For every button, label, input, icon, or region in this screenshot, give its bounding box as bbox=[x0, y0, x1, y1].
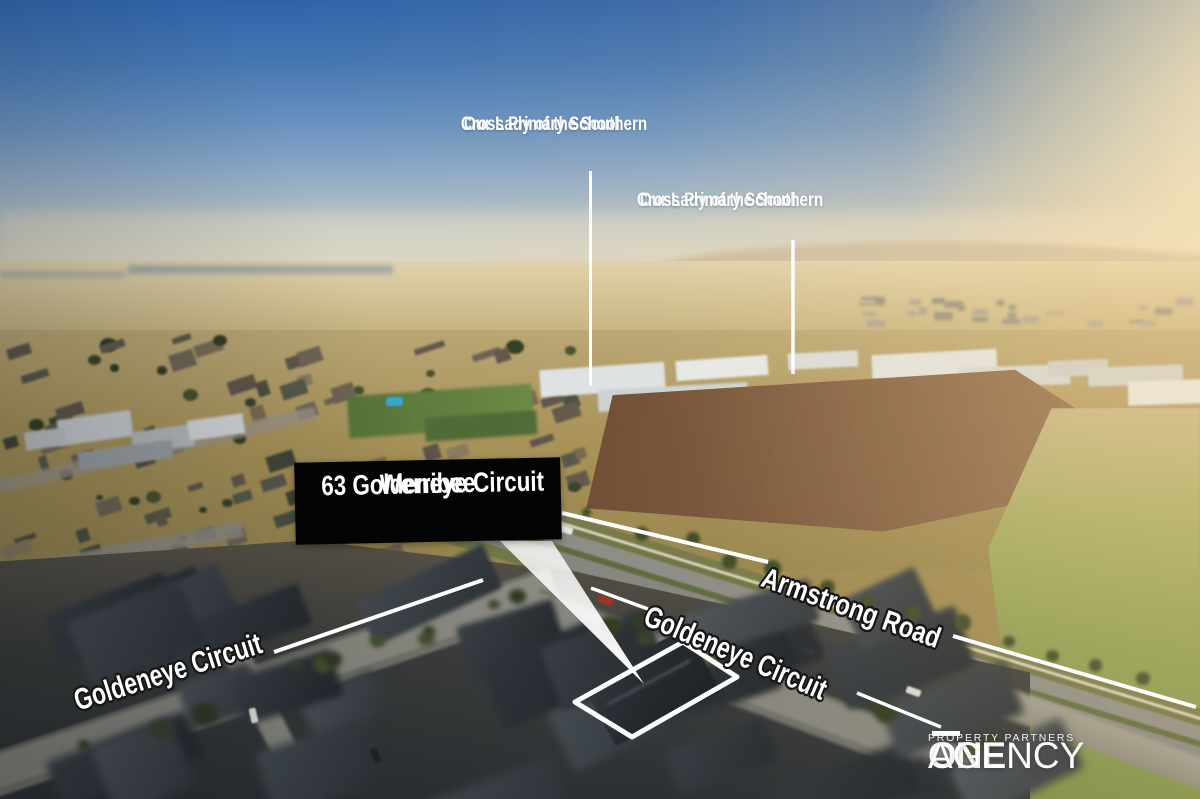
distant-house bbox=[1155, 308, 1172, 316]
school-roof bbox=[1128, 378, 1200, 405]
distant-house bbox=[910, 299, 921, 305]
distant-house bbox=[1046, 312, 1065, 315]
tree-shape bbox=[146, 491, 161, 503]
tree-shape bbox=[875, 703, 898, 723]
school-label-line: Cross Primary School bbox=[461, 112, 620, 138]
distant-house bbox=[973, 309, 988, 316]
tree-shape bbox=[183, 389, 198, 401]
distant-house bbox=[907, 311, 916, 316]
distant-house bbox=[1023, 316, 1039, 322]
tree-shape bbox=[290, 660, 303, 671]
distant-house bbox=[972, 317, 987, 322]
tree-shape bbox=[722, 554, 737, 569]
tree-shape bbox=[110, 364, 120, 372]
tree-shape bbox=[192, 703, 218, 725]
tree-shape bbox=[370, 635, 384, 647]
tree-shape bbox=[426, 370, 435, 377]
distant-house bbox=[934, 312, 953, 320]
distant-house bbox=[1176, 298, 1193, 306]
tree-shape bbox=[325, 652, 342, 666]
distant-city bbox=[128, 265, 393, 274]
tree-shape bbox=[1003, 636, 1014, 647]
tree-shape bbox=[1136, 672, 1149, 685]
tree-shape bbox=[582, 508, 591, 517]
tree-shape bbox=[635, 527, 649, 541]
distant-house bbox=[1009, 305, 1016, 310]
tree-shape bbox=[955, 614, 972, 631]
distant-house bbox=[1002, 319, 1020, 324]
tree-shape bbox=[598, 616, 621, 635]
distant-house bbox=[997, 300, 1004, 305]
distant-house bbox=[918, 307, 927, 315]
tree-shape bbox=[509, 589, 526, 603]
tree-shape bbox=[78, 740, 89, 750]
tree-shape bbox=[88, 355, 101, 365]
distant-city bbox=[0, 271, 125, 278]
distant-house bbox=[863, 312, 876, 316]
logo-tagline: PROPERTY PARTNERS bbox=[928, 732, 1075, 744]
swimming-pool bbox=[386, 397, 403, 406]
tree-shape bbox=[222, 499, 233, 508]
distant-house bbox=[1088, 321, 1103, 327]
tree-shape bbox=[213, 335, 227, 346]
distant-house bbox=[958, 306, 965, 311]
tree-shape bbox=[488, 600, 499, 610]
distant-house bbox=[1139, 305, 1147, 310]
distant-house bbox=[867, 320, 885, 327]
distant-house bbox=[859, 302, 876, 306]
distant-house bbox=[861, 297, 878, 300]
tree-shape bbox=[157, 366, 168, 374]
tree-shape bbox=[129, 497, 139, 505]
property-address-box: 63 Goldeneye Circuit Werribee bbox=[294, 457, 562, 545]
school-label-line: Cross Primary School bbox=[637, 188, 796, 214]
distant-house bbox=[1138, 321, 1155, 326]
tree-shape bbox=[1089, 659, 1102, 672]
aerial-property-photo: Our Lady of the Southern Cross Primary S… bbox=[0, 0, 1200, 799]
property-suburb-line: Werribee bbox=[321, 465, 534, 503]
